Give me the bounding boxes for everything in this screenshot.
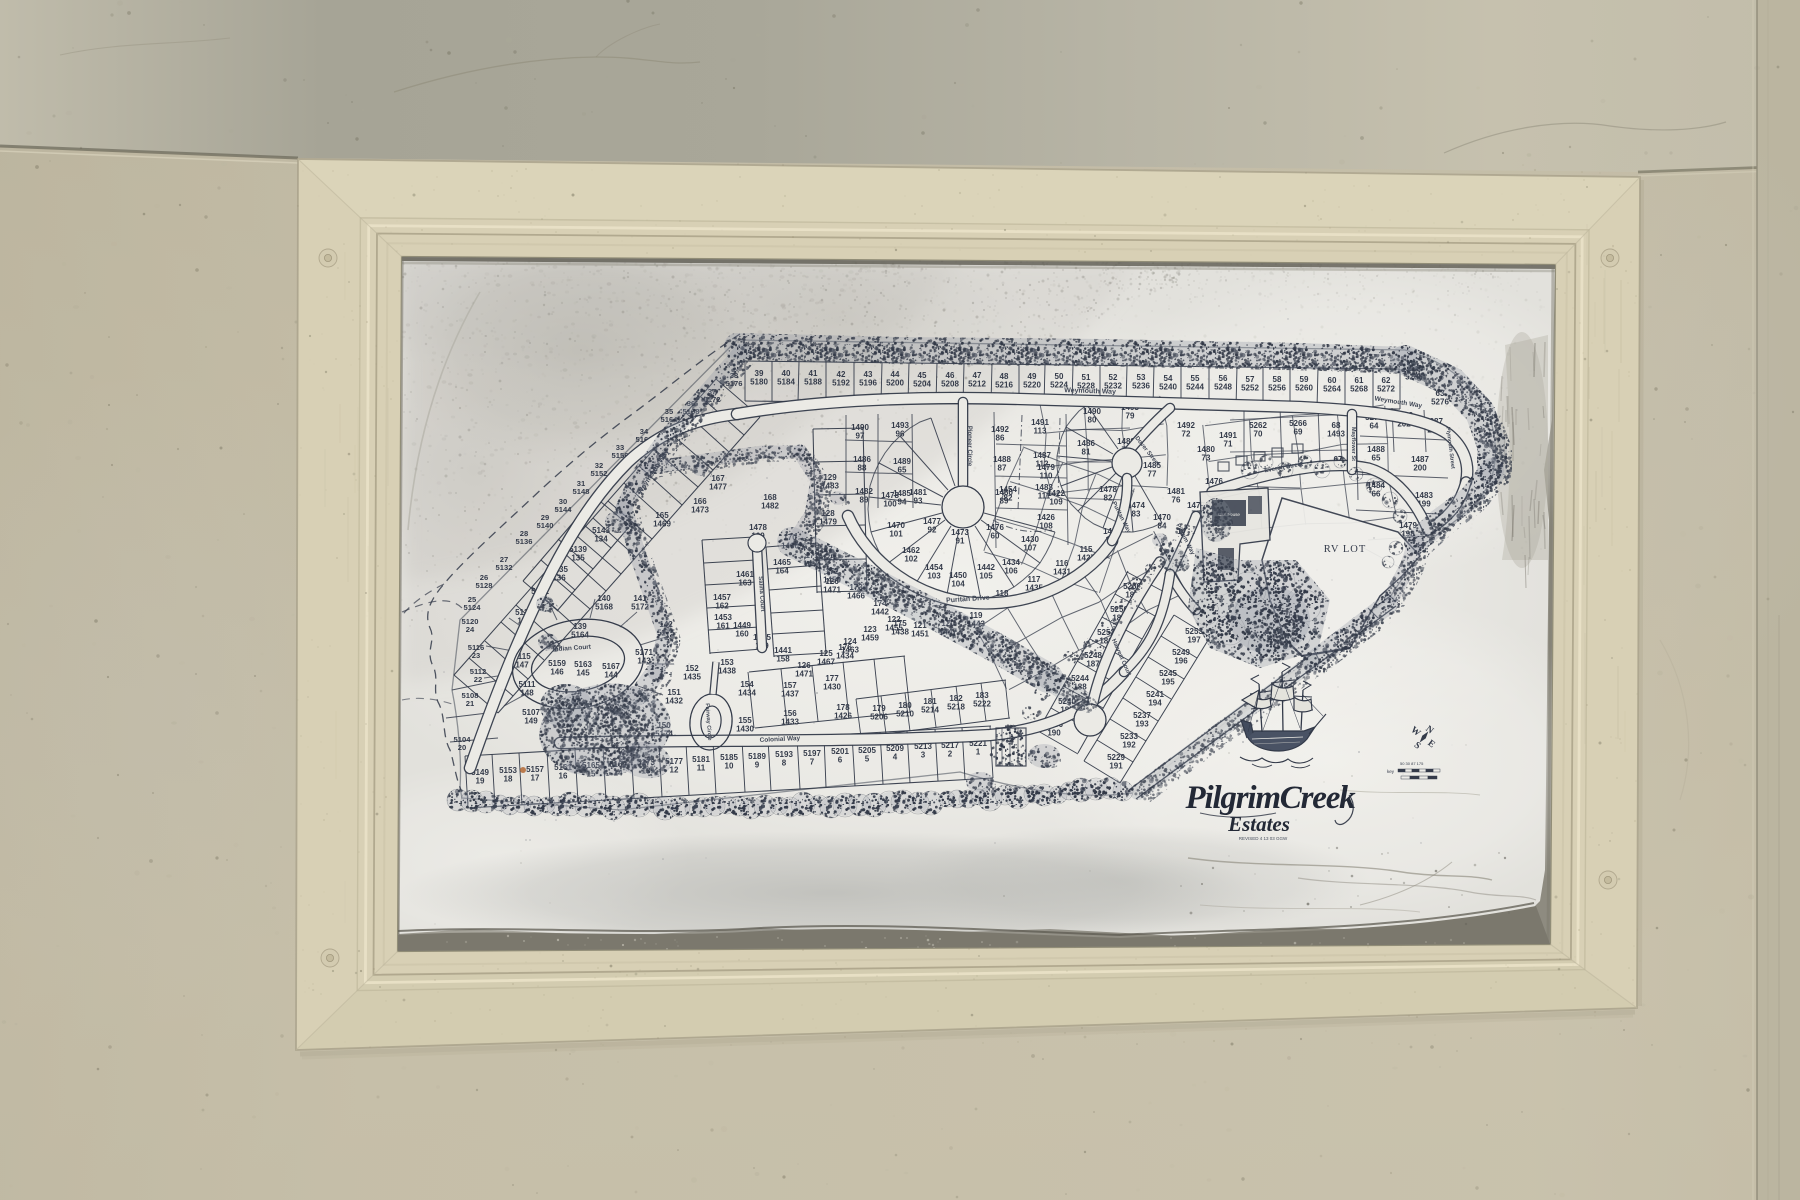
svg-text:key: key: [1387, 769, 1395, 774]
svg-text:50 30 87 175: 50 30 87 175: [1400, 761, 1424, 766]
svg-text:PilgrimCreek: PilgrimCreek: [1185, 780, 1357, 816]
svg-text:REVISED 4 13 03 GGW: REVISED 4 13 03 GGW: [1239, 836, 1288, 841]
svg-text:Pioneer Circle: Pioneer Circle: [966, 426, 972, 467]
svg-text:RV LOT: RV LOT: [1324, 544, 1367, 555]
svg-text:5111148: 5111148: [519, 680, 536, 698]
svg-text:Mayflower St: Mayflower St: [1350, 427, 1356, 461]
